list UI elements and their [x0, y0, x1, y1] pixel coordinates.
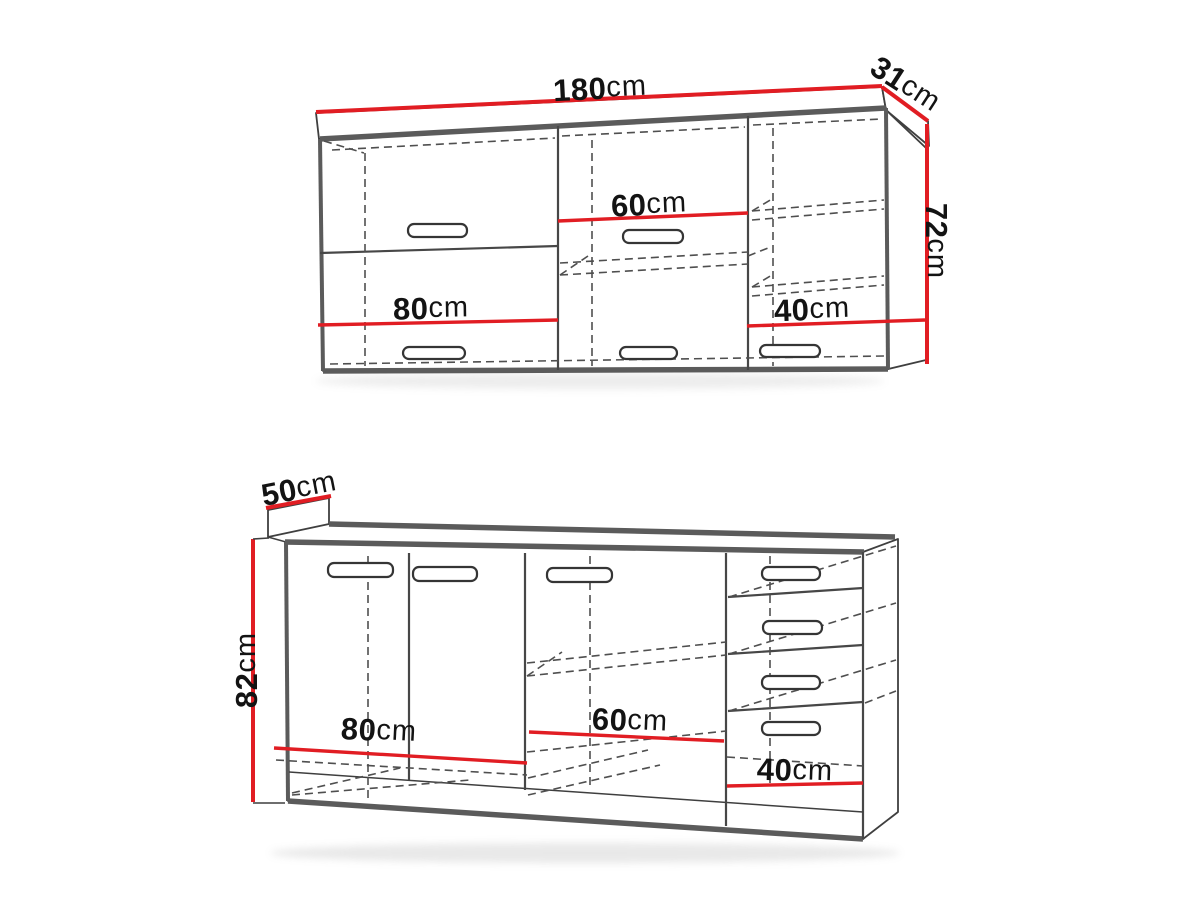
- wall-section-middle-label: 60cm: [610, 185, 688, 223]
- door-handle: [403, 347, 465, 359]
- base-section-left-value: 80: [340, 711, 377, 748]
- wall-section-middle-unit: cm: [646, 186, 688, 220]
- base-section-middle-value: 60: [591, 701, 628, 738]
- base-cabinet-shadow: [270, 843, 900, 863]
- wall-width-label: 180cm: [552, 68, 648, 108]
- base-height-value: 82: [229, 673, 264, 708]
- base-section-left-label: 80cm: [340, 711, 418, 750]
- door-handle: [760, 345, 820, 357]
- base-depth-unit: cm: [293, 465, 339, 504]
- drawer-handle: [762, 676, 820, 689]
- wall-section-right-unit: cm: [809, 292, 851, 325]
- wall-height-label: 72cm: [920, 203, 955, 279]
- base-section-middle-label: 60cm: [591, 701, 669, 739]
- drawer-handle: [762, 567, 820, 580]
- wall-section-left-label: 80cm: [393, 290, 470, 326]
- base-height-unit: cm: [230, 632, 262, 673]
- base-height-label: 82cm: [229, 632, 264, 708]
- wall-width-unit: cm: [605, 70, 647, 104]
- wall-cabinet-front: [320, 108, 888, 371]
- door-handle: [328, 563, 393, 577]
- wall-cabinet-shadow: [315, 373, 885, 389]
- cabinet-dimension-diagram: 180cm 31cm 72cm 80cm 60cm 40cm: [0, 0, 1200, 899]
- door-handle: [413, 567, 477, 581]
- drawer-handle: [762, 722, 820, 735]
- door-handle: [547, 568, 612, 582]
- base-section-middle-unit: cm: [627, 704, 669, 738]
- base-section-right-value: 40: [756, 751, 793, 787]
- wall-cabinet: 180cm 31cm 72cm 80cm 60cm 40cm: [315, 49, 955, 389]
- door-handle: [408, 224, 467, 237]
- base-section-left-unit: cm: [376, 714, 418, 748]
- base-cabinet-front: [286, 542, 863, 839]
- diagram-canvas: 180cm 31cm 72cm 80cm 60cm 40cm: [0, 0, 1200, 899]
- wall-cabinet-side: [886, 110, 926, 369]
- wall-section-left-value: 80: [393, 291, 429, 327]
- door-handle: [620, 347, 677, 359]
- wall-section-right-label: 40cm: [773, 290, 850, 328]
- wall-height-unit: cm: [921, 238, 953, 279]
- wall-section-middle-value: 60: [610, 187, 647, 224]
- door-handle: [623, 230, 683, 243]
- base-worktop-back-edge: [329, 524, 895, 537]
- base-section-right-label: 40cm: [756, 751, 833, 789]
- wall-height-value: 72: [920, 203, 955, 238]
- wall-section-left-unit: cm: [428, 291, 469, 324]
- wall-width-value: 180: [552, 70, 607, 108]
- wall-section-right-value: 40: [773, 292, 810, 328]
- base-cabinet: 50cm 82cm 80cm 60cm 40cm: [229, 464, 901, 863]
- base-section-right-unit: cm: [792, 754, 834, 787]
- base-cabinet-side: [863, 539, 898, 839]
- drawer-handle: [763, 621, 822, 634]
